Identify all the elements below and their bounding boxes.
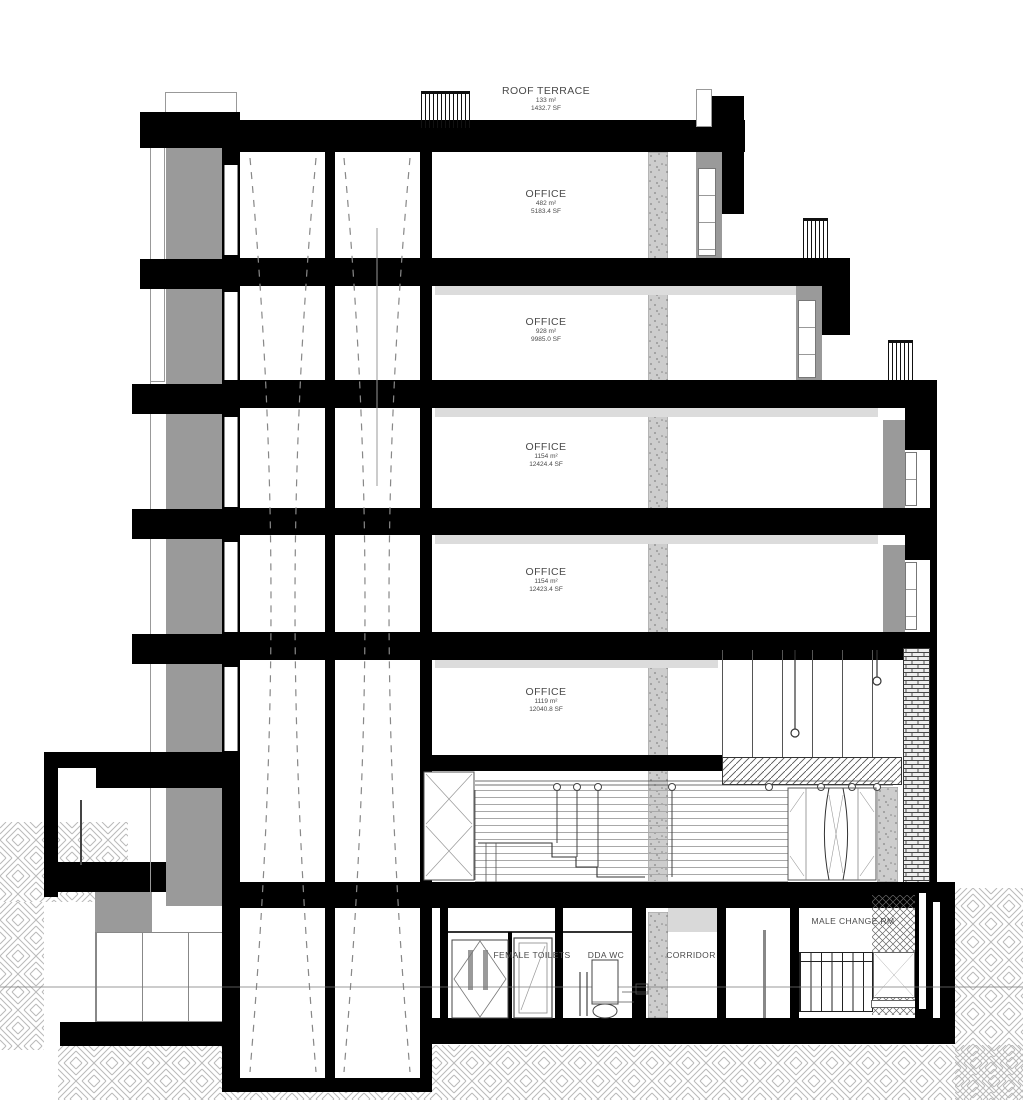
shaft-wall-middle xyxy=(325,152,335,1078)
room-name: OFFICE xyxy=(466,687,626,698)
parapet-coping-right xyxy=(696,89,712,127)
ground-floor-slab xyxy=(230,882,955,908)
label-roof-terrace: ROOF TERRACE 133 m² 1432.7 SF xyxy=(466,86,626,112)
roof-slab xyxy=(222,120,745,152)
window-l3 xyxy=(905,562,917,630)
room-name: OFFICE xyxy=(466,317,626,328)
label-office-l2: OFFICE 1119 m² 12040.8 SF xyxy=(466,687,626,713)
room-area-sf: 5183.4 SF xyxy=(466,208,626,216)
basement-wall-3 xyxy=(632,895,646,1025)
ceiling-l3 xyxy=(435,535,878,544)
entrance-screen-mullions xyxy=(722,650,902,757)
core-window-l6 xyxy=(224,165,238,255)
room-name: OFFICE xyxy=(466,567,626,578)
basement-partition xyxy=(763,930,766,1025)
bench xyxy=(871,1000,917,1008)
mezzanine-slab-hatch xyxy=(722,757,902,785)
concrete-column-basement xyxy=(648,912,668,1018)
basement-wall-5 xyxy=(790,895,799,1025)
room-area-m2: 133 m² xyxy=(466,97,626,105)
basement-wall-2 xyxy=(555,895,563,1025)
ceiling-l5 xyxy=(435,286,835,295)
room-area-sf: 12423.4 SF xyxy=(466,586,626,594)
room-area-sf: 12424.4 SF xyxy=(466,461,626,469)
core-window-l3 xyxy=(224,542,238,632)
annex-basement-glazing xyxy=(95,932,237,1022)
partition-head xyxy=(448,931,632,933)
terrace-railing xyxy=(421,91,470,128)
lockers xyxy=(799,952,873,1012)
basement-wall-4 xyxy=(717,895,726,1025)
room-area-m2: 1119 m² xyxy=(466,698,626,706)
room-area-m2: 928 m² xyxy=(466,328,626,336)
slab-tab-l3 xyxy=(132,634,222,664)
slab-l4 xyxy=(222,508,937,535)
room-area-m2: 1154 m² xyxy=(466,578,626,586)
slab-l5 xyxy=(222,380,937,408)
window-l4 xyxy=(905,452,917,506)
ground-hatch-left-strip xyxy=(0,902,44,1050)
terrace-railing-l6 xyxy=(803,218,828,258)
edge-wall-l2 xyxy=(930,660,937,888)
basement-base-slab xyxy=(432,1018,955,1044)
room-name: OFFICE xyxy=(466,189,626,200)
basement-wall-1 xyxy=(440,895,448,1025)
label-office-l5: OFFICE 928 m² 9985.0 SF xyxy=(466,317,626,343)
drain-slot-2 xyxy=(933,902,940,1034)
room-area-m2: 482 m² xyxy=(466,200,626,208)
slab-tab-l4 xyxy=(132,509,222,539)
entrance-column xyxy=(877,787,898,882)
room-name: ROOF TERRACE xyxy=(466,86,626,97)
window-l6 xyxy=(698,168,716,256)
corner-l5 xyxy=(820,258,850,335)
core-window-l5 xyxy=(224,292,238,382)
stair-hall-cladding xyxy=(475,790,788,882)
slab-tab-roof xyxy=(140,112,222,148)
terrace-railing-l5 xyxy=(888,340,913,380)
label-dda-wc: DDA WC xyxy=(570,950,642,960)
label-corridor: CORRIDOR xyxy=(648,950,734,960)
facade-l4 xyxy=(883,420,905,508)
door-mullion xyxy=(508,932,512,1020)
slab-l2 xyxy=(420,755,722,771)
brick-pier xyxy=(903,648,930,888)
core-window-l4 xyxy=(224,417,238,507)
parapet-coping-left xyxy=(165,92,237,113)
ceiling-l2 xyxy=(435,660,718,668)
section-drawing: ROOF TERRACE 133 m² 1432.7 SF OFFICE 482… xyxy=(0,0,1023,1100)
shaft-base-slab xyxy=(222,1078,432,1092)
label-office-l6: OFFICE 482 m² 5183.4 SF xyxy=(466,189,626,215)
annex-wall-panel xyxy=(95,892,152,932)
room-area-sf: 1432.7 SF xyxy=(466,105,626,113)
shower-glass xyxy=(873,952,915,998)
edge-wall-l3 xyxy=(930,535,937,632)
core-window-l2 xyxy=(224,667,238,751)
room-name: OFFICE xyxy=(466,442,626,453)
shaft-interior-right xyxy=(335,153,420,1078)
ground-hatch-bottom xyxy=(58,1045,1023,1100)
annex-handrail-post xyxy=(80,800,82,865)
shaft-interior-left xyxy=(240,153,325,1078)
drain-slot-1 xyxy=(919,893,926,1009)
window-l5 xyxy=(798,300,816,378)
label-male-change-rm: MALE CHANGE RM xyxy=(798,916,908,926)
corridor-ceiling xyxy=(668,908,717,932)
room-area-sf: 12040.8 SF xyxy=(466,706,626,714)
slab-l6 xyxy=(222,258,850,286)
room-area-sf: 9985.0 SF xyxy=(466,336,626,344)
slab-tab-l2 xyxy=(96,752,222,788)
facade-l3 xyxy=(883,545,905,632)
room-area-m2: 1154 m² xyxy=(466,453,626,461)
ceiling-l4 xyxy=(435,408,878,417)
revolving-door xyxy=(788,788,876,880)
label-office-l3: OFFICE 1154 m² 12423.4 SF xyxy=(466,567,626,593)
annex-base-slab xyxy=(60,1022,237,1046)
slab-tab-l5 xyxy=(132,384,222,414)
label-office-l4: OFFICE 1154 m² 12424.4 SF xyxy=(466,442,626,468)
facade-glazing-outline xyxy=(150,118,165,382)
slab-tab-l6 xyxy=(140,259,222,289)
edge-wall-l4 xyxy=(930,408,937,508)
